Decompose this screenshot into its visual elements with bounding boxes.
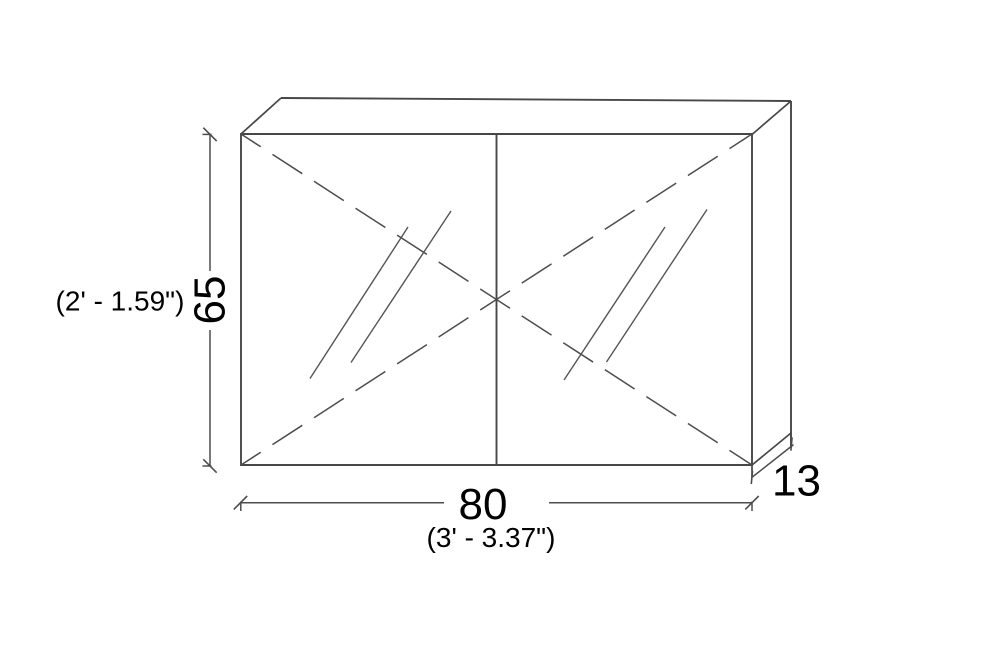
svg-text:(3' - 3.37"): (3' - 3.37") bbox=[427, 522, 556, 553]
svg-text:65: 65 bbox=[186, 276, 235, 325]
svg-text:13: 13 bbox=[772, 457, 821, 506]
svg-text:(2' - 1.59"): (2' - 1.59") bbox=[56, 286, 185, 317]
